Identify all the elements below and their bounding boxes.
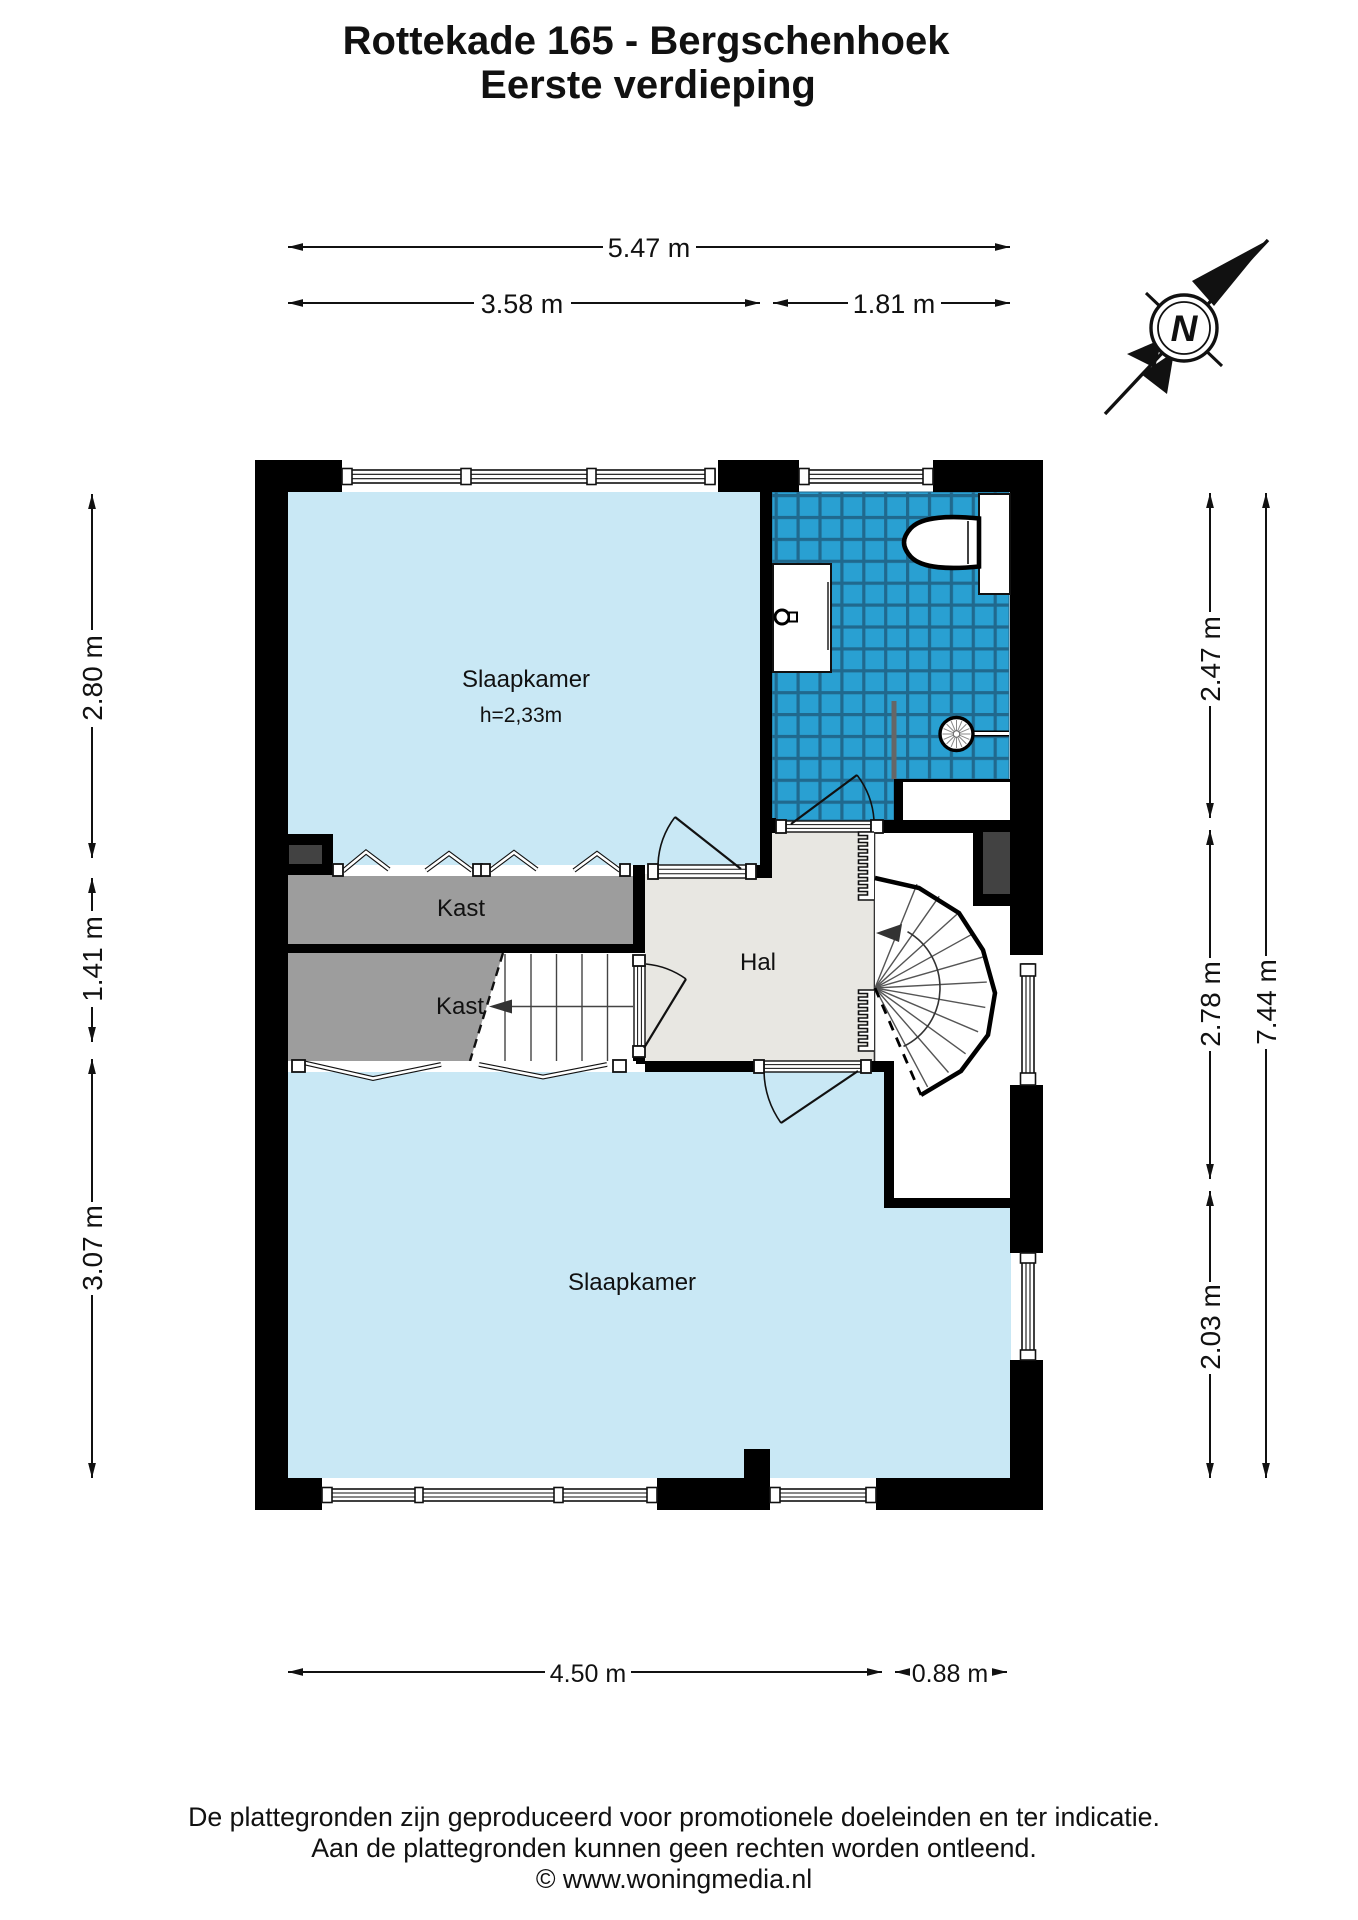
svg-text:Hal: Hal [740,949,776,976]
svg-text:1.81 m: 1.81 m [853,289,936,319]
svg-text:1.41 m: 1.41 m [77,916,108,1002]
svg-text:3.58 m: 3.58 m [481,289,564,319]
svg-text:3.07 m: 3.07 m [77,1205,108,1291]
svg-text:De plattegronden zijn geproduc: De plattegronden zijn geproduceerd voor … [188,1802,1160,1832]
svg-text:5.47 m: 5.47 m [608,233,691,263]
svg-text:Slaapkamer: Slaapkamer [462,666,590,693]
svg-text:Aan de plattegronden kunnen ge: Aan de plattegronden kunnen geen rechten… [311,1833,1037,1863]
svg-text:2.80 m: 2.80 m [77,635,108,721]
svg-text:Rottekade 165 - Bergschenhoek: Rottekade 165 - Bergschenhoek [343,19,951,63]
svg-text:2.03 m: 2.03 m [1195,1284,1226,1370]
svg-text:Kast: Kast [436,993,484,1020]
svg-text:7.44 m: 7.44 m [1251,959,1282,1045]
svg-text:Eerste verdieping: Eerste verdieping [480,63,816,107]
svg-text:h=2,33m: h=2,33m [480,704,562,727]
svg-text:2.78 m: 2.78 m [1195,961,1226,1047]
svg-text:0.88 m: 0.88 m [912,1660,988,1688]
svg-text:4.50 m: 4.50 m [550,1660,626,1688]
svg-text:Kast: Kast [437,895,485,922]
svg-text:N: N [1171,308,1199,349]
svg-text:Slaapkamer: Slaapkamer [568,1269,696,1296]
svg-text:© www.woningmedia.nl: © www.woningmedia.nl [536,1864,812,1894]
svg-text:2.47 m: 2.47 m [1195,616,1226,702]
